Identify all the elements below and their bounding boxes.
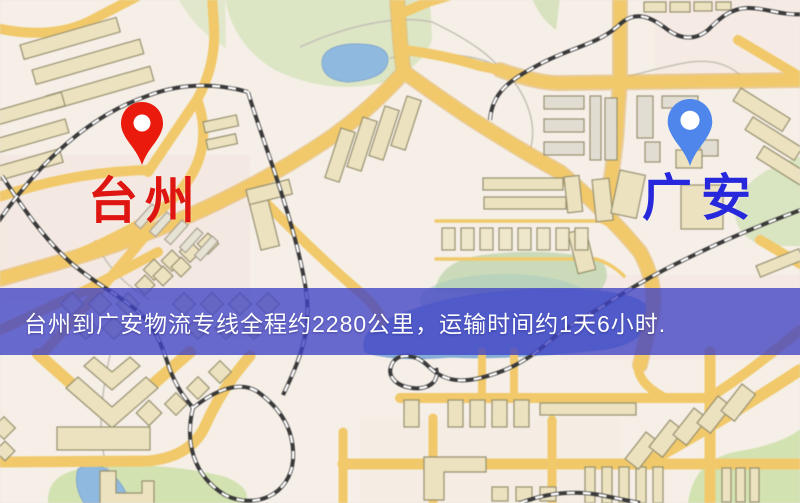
map-background bbox=[0, 0, 800, 503]
origin-label: 台州 bbox=[88, 176, 202, 226]
origin-marker[interactable] bbox=[120, 101, 164, 167]
destination-label: 广安 bbox=[642, 173, 760, 223]
map-canvas: 台州到广安物流专线全程约2280公里，运输时间约1天6小时. 台州 广安 bbox=[0, 0, 800, 503]
origin-pin-icon[interactable] bbox=[120, 101, 164, 167]
route-info-text: 台州到广安物流专线全程约2280公里，运输时间约1天6小时. bbox=[24, 305, 666, 339]
destination-pin-icon[interactable] bbox=[666, 98, 714, 168]
route-info-banner: 台州到广安物流专线全程约2280公里，运输时间约1天6小时. bbox=[0, 288, 800, 355]
destination-marker[interactable] bbox=[666, 98, 714, 168]
